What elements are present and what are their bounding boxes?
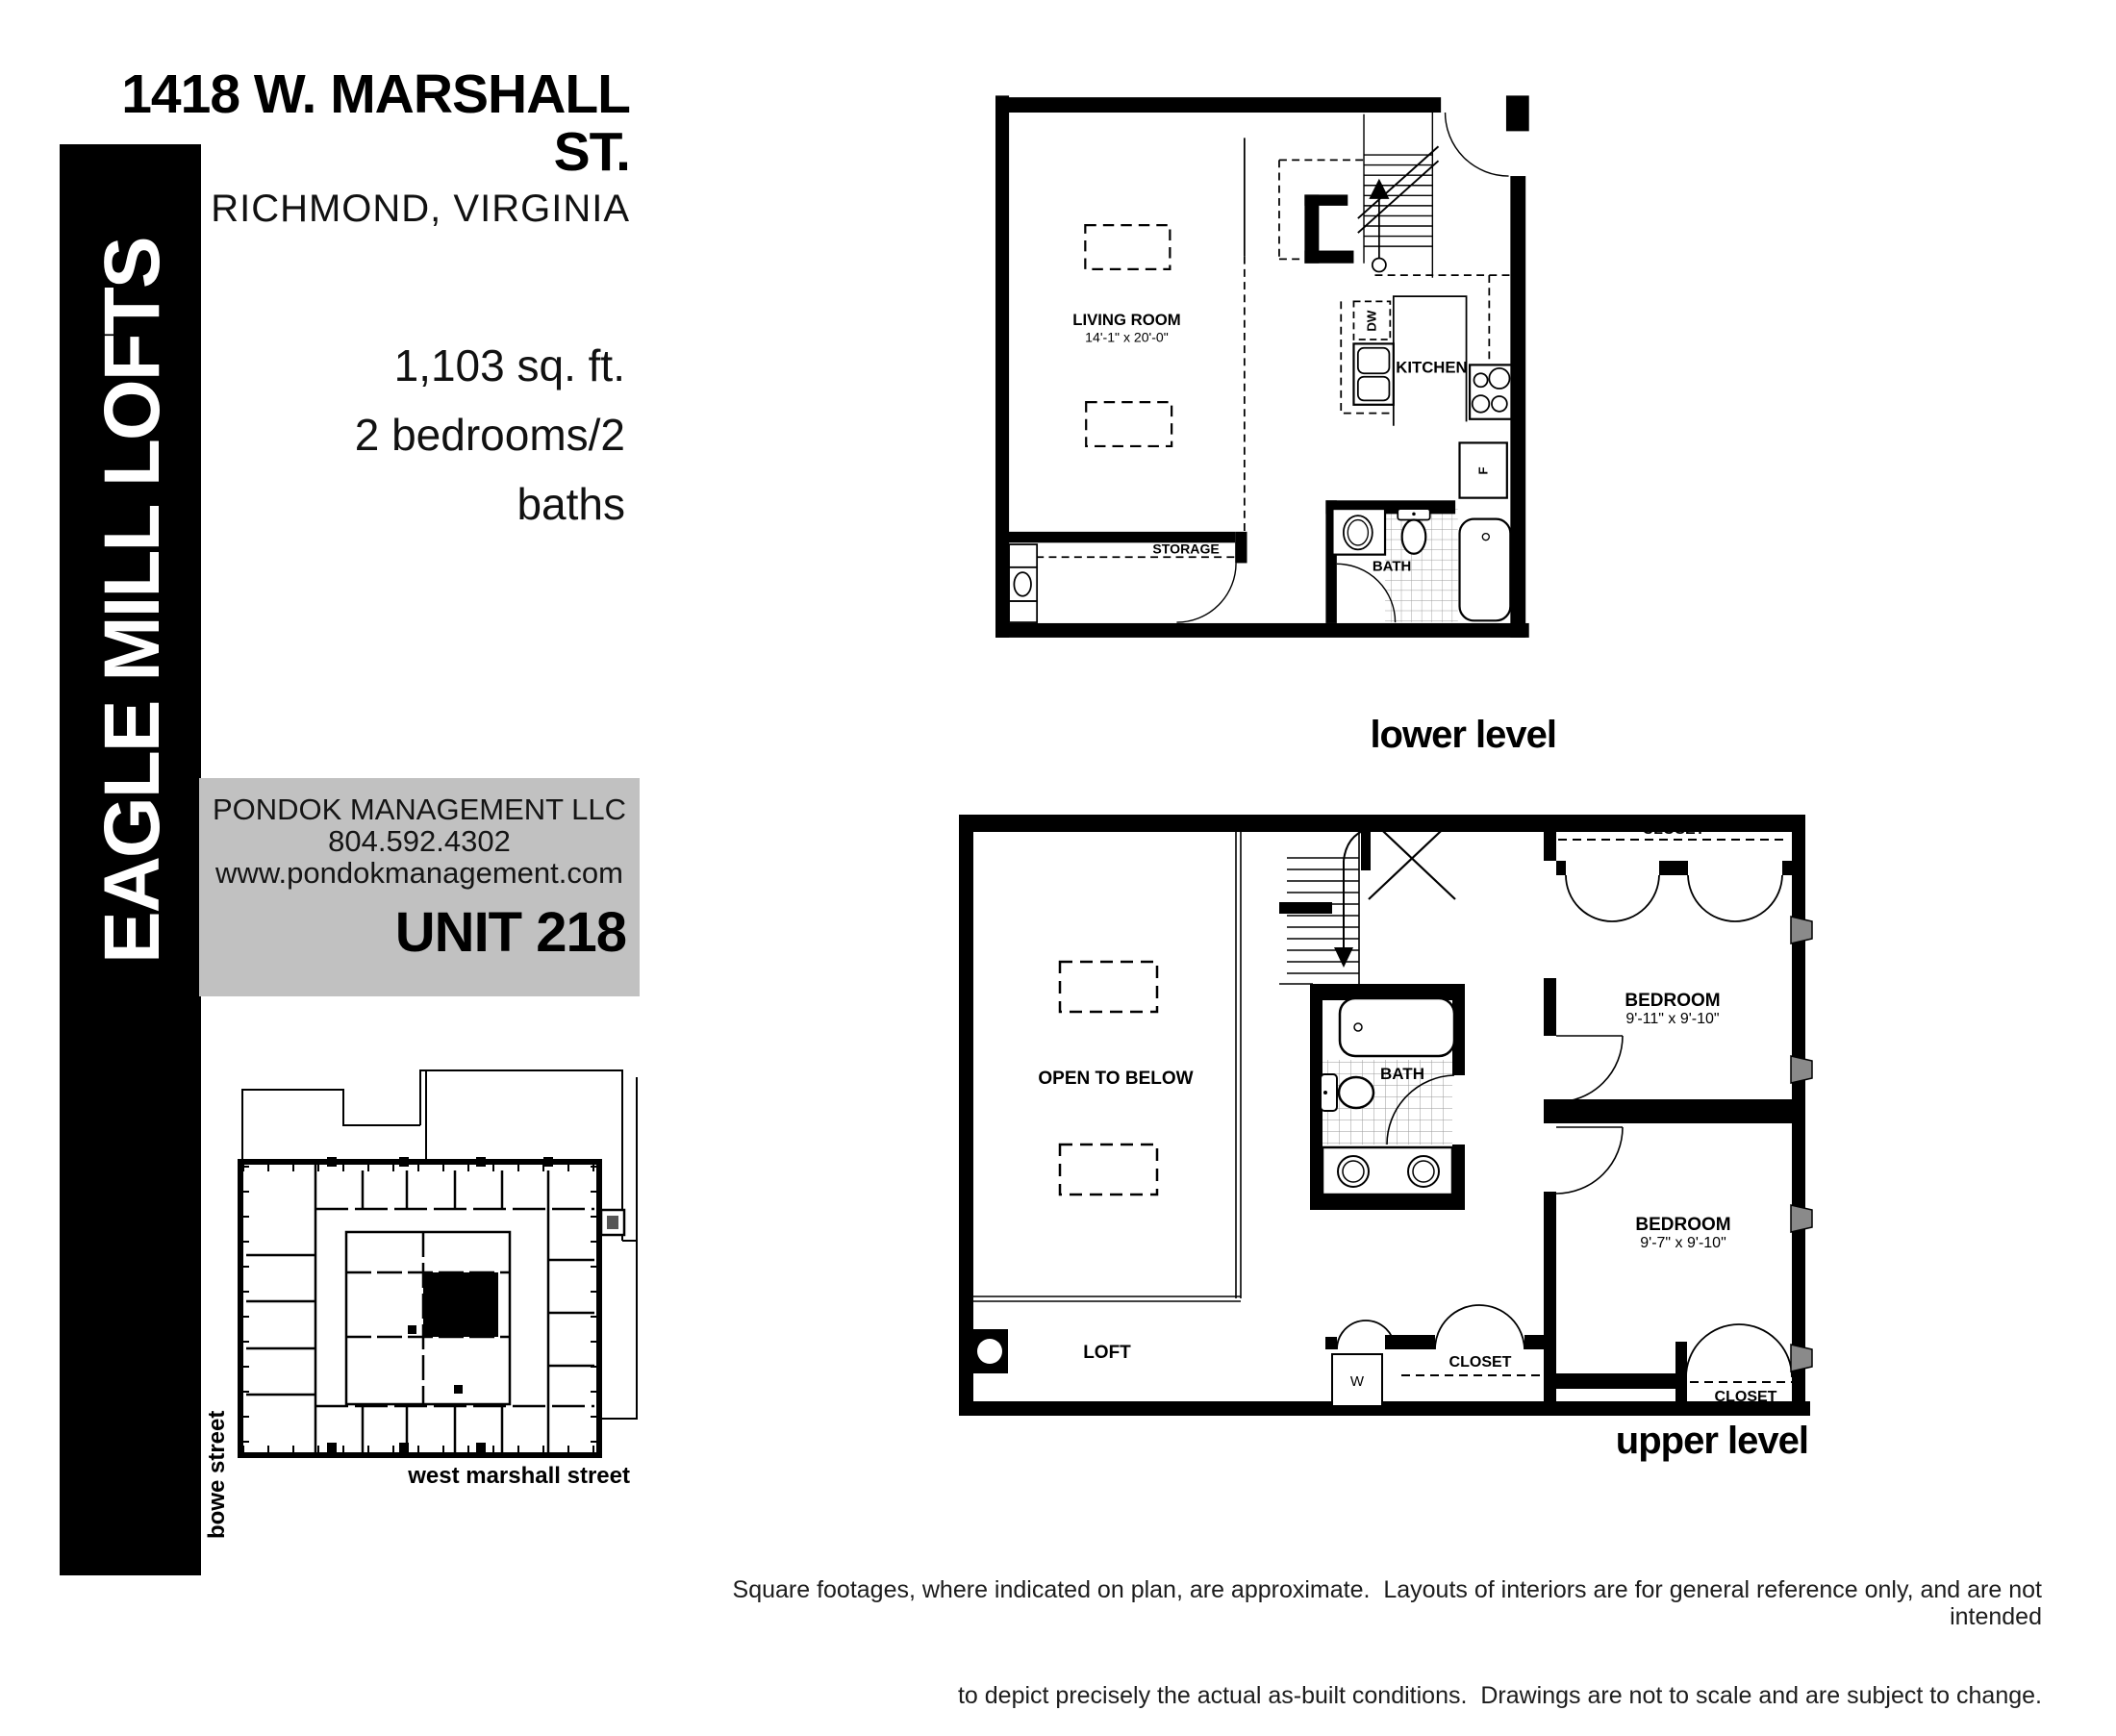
washer-label: W [1350, 1373, 1365, 1390]
disclaimer: Square footages, where indicated on plan… [693, 1524, 2042, 1736]
bedroom1-label: BEDROOM [1625, 991, 1720, 1011]
lower-level-plan: LIVING ROOM 14'-1" x 20'-0" KITCHEN DW F… [952, 91, 1577, 765]
disclaimer-line1: Square footages, where indicated on plan… [693, 1577, 2042, 1630]
upper-level-caption: upper level [1500, 1420, 1808, 1463]
open-to-below-edge [973, 832, 1241, 1301]
management-phone: 804.592.4302 [199, 825, 640, 857]
street-label-bowe: bowe street [204, 1411, 231, 1539]
fridge-label: F [1476, 466, 1491, 474]
unit-bedbath: 2 bedrooms/2 baths [240, 400, 625, 539]
lower-level-caption: lower level [1248, 714, 1556, 757]
kitchen-label: KITCHEN [1396, 358, 1467, 376]
building-outline [240, 1162, 599, 1455]
utility-chase-upper-icon [971, 1329, 1008, 1373]
management-company: PONDOK MANAGEMENT LLC [199, 793, 640, 825]
closet2-label: CLOSET [1449, 1354, 1512, 1371]
floorplan-flyer: { "header": { "address": "1418 W. MARSHA… [0, 0, 2116, 1635]
staircase [1358, 113, 1439, 278]
bedroom1-dims: 9'-11" x 9'-10" [1625, 1011, 1719, 1027]
living-room-label: LIVING ROOM [1072, 311, 1180, 329]
unit-218-highlight [423, 1272, 498, 1337]
living-room-dims: 14'-1" x 20'-0" [1085, 330, 1169, 345]
bedroom2-label: BEDROOM [1635, 1215, 1730, 1235]
stair-up-arrowhead [1369, 179, 1389, 199]
elevator-core [607, 1216, 618, 1229]
open-to-below-label: OPEN TO BELOW [1038, 1069, 1193, 1089]
bath-label-upper: BATH [1380, 1065, 1424, 1083]
management-contact: PONDOK MANAGEMENT LLC 804.592.4302 www.p… [199, 778, 640, 889]
toilet-upper-icon [1321, 1074, 1337, 1111]
management-website: www.pondokmanagement.com [199, 857, 640, 889]
stair-down-arrowhead [1334, 947, 1353, 968]
unit-number: UNIT 218 [199, 900, 640, 965]
upper-level-plan: CLOSET BEDROOM 9'-11" x 9'-10" OPEN TO B… [952, 808, 1818, 1423]
brand-name: EAGLE MILL LOFTS [85, 238, 181, 964]
dishwasher-label: DW [1364, 310, 1378, 332]
management-box: PONDOK MANAGEMENT LLC 804.592.4302 www.p… [199, 778, 640, 996]
closet1-label: CLOSET [1643, 821, 1705, 838]
loft-label: LOFT [1083, 1343, 1131, 1363]
unit-info: 1,103 sq. ft. 2 bedrooms/2 baths [240, 331, 625, 539]
site-plan [202, 1048, 654, 1500]
street-label-marshall: west marshall street [245, 1463, 630, 1490]
bedroom2-dims: 9'-7" x 9'-10" [1640, 1235, 1726, 1251]
closet3-label: CLOSET [1715, 1389, 1777, 1405]
brand-banner: EAGLE MILL LOFTS [60, 144, 201, 1575]
utility-chase-icon [1009, 544, 1037, 622]
disclaimer-line2: to depict precisely the actual as-built … [693, 1683, 2042, 1710]
bath-label-lower: BATH [1373, 558, 1411, 574]
storage-label: STORAGE [1152, 541, 1219, 557]
unit-sqft: 1,103 sq. ft. [240, 331, 625, 400]
